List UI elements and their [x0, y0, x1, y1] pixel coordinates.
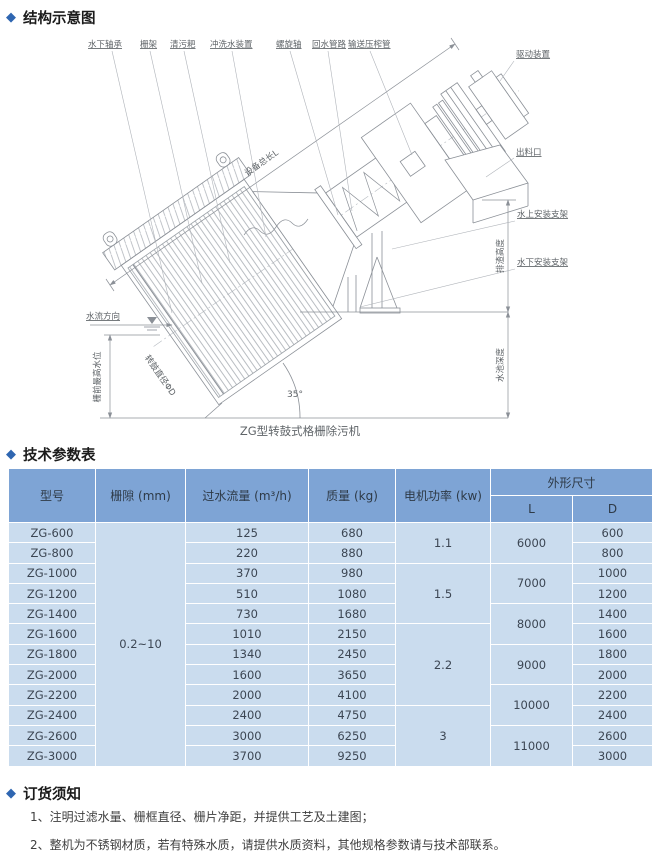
cell-diameter: 1800 — [573, 644, 653, 664]
cell-power: 1.1 — [396, 523, 491, 564]
table-row: ZG-600 0.2~10 125 680 1.1 6000 600 — [9, 523, 653, 543]
cell-mass: 680 — [309, 523, 396, 543]
section-specs-heading: ◆ 技术参数表 — [6, 444, 96, 465]
order-note: 2、整机为不锈钢材质，若有特殊水质，请提供水质资料，其他规格参数请与技术部联系。 — [30, 836, 506, 853]
cell-flow: 1010 — [186, 624, 309, 644]
label-pool-depth: 水池深度 — [495, 348, 506, 383]
cell-mass: 6250 — [309, 725, 396, 745]
cell-model: ZG-3000 — [9, 746, 96, 766]
col-header-L: L — [491, 496, 573, 523]
label-press-pipe: 输送压榨管 — [348, 39, 391, 50]
label-drive: 驱动装置 — [516, 49, 551, 60]
section-title: 技术参数表 — [23, 444, 96, 465]
diagram-caption: ZG型转鼓式格栅除污机 — [240, 424, 361, 438]
cell-model: ZG-2000 — [9, 665, 96, 685]
cell-mass: 3650 — [309, 665, 396, 685]
section-order-heading: ◆ 订货须知 — [6, 783, 81, 804]
cell-model: ZG-1200 — [9, 583, 96, 603]
cell-power: 2.2 — [396, 624, 491, 705]
cell-model: ZG-2200 — [9, 685, 96, 705]
cell-diameter: 3000 — [573, 746, 653, 766]
label-outlet: 出料口 — [516, 147, 542, 158]
catalog-page: ◆ 结构示意图 — [0, 0, 660, 860]
label-angle: 35° — [287, 390, 303, 400]
cell-length: 6000 — [491, 523, 573, 564]
cell-diameter: 1000 — [573, 563, 653, 583]
cell-mass: 4750 — [309, 705, 396, 725]
cell-flow: 2400 — [186, 705, 309, 725]
cell-length: 11000 — [491, 725, 573, 766]
cell-mass: 1680 — [309, 604, 396, 624]
spec-table: 型号 栅隙 (mm) 过水流量 (m³/h) 质量 (kg) 电机功率 (kw)… — [8, 468, 653, 767]
cell-model: ZG-1800 — [9, 644, 96, 664]
cell-mass: 980 — [309, 563, 396, 583]
cell-mass: 2150 — [309, 624, 396, 644]
label-total-length: 设备总长L — [243, 147, 281, 178]
cell-diameter: 2400 — [573, 705, 653, 725]
label-under-water-bracket: 水下安装支架 — [517, 257, 569, 268]
cell-diameter: 800 — [573, 543, 653, 563]
label-return-pipe: 回水管路 — [312, 39, 347, 50]
diamond-icon: ◆ — [6, 787, 16, 800]
cell-flow: 370 — [186, 563, 309, 583]
col-header-gap: 栅隙 (mm) — [96, 469, 186, 523]
section-title: 订货须知 — [23, 783, 81, 804]
label-underwater-bearing: 水下轴承 — [88, 39, 123, 50]
cell-flow: 3700 — [186, 746, 309, 766]
cell-length: 9000 — [491, 644, 573, 685]
cell-diameter: 1400 — [573, 604, 653, 624]
label-front-water-level: 栅前最高水位 — [92, 351, 103, 403]
col-header-mass: 质量 (kg) — [309, 469, 396, 523]
cell-diameter: 2000 — [573, 665, 653, 685]
cell-model: ZG-1600 — [9, 624, 96, 644]
cell-diameter: 1200 — [573, 583, 653, 603]
label-screw-shaft: 螺旋轴 — [276, 39, 302, 50]
cell-diameter: 2200 — [573, 685, 653, 705]
col-header-model: 型号 — [9, 469, 96, 523]
cell-mass: 9250 — [309, 746, 396, 766]
cell-flow: 730 — [186, 604, 309, 624]
cell-diameter: 1600 — [573, 624, 653, 644]
label-grid-frame: 栅架 — [140, 39, 158, 50]
cell-mass: 880 — [309, 543, 396, 563]
label-flush-device: 冲洗水装置 — [210, 39, 253, 50]
label-flow-direction: 水流方向 — [86, 311, 120, 322]
order-note: 1、注明过滤水量、栅框直径、栅片净距，并提供工艺及土建图； — [30, 808, 374, 825]
spec-table-wrap: 型号 栅隙 (mm) 过水流量 (m³/h) 质量 (kg) 电机功率 (kw)… — [8, 468, 652, 767]
cell-flow: 1340 — [186, 644, 309, 664]
cell-diameter: 2600 — [573, 725, 653, 745]
cell-length: 10000 — [491, 685, 573, 726]
cell-model: ZG-600 — [9, 523, 96, 543]
cell-mass: 2450 — [309, 644, 396, 664]
cell-flow: 2000 — [186, 685, 309, 705]
cell-length: 8000 — [491, 604, 573, 645]
cell-power: 1.5 — [396, 563, 491, 624]
diamond-icon: ◆ — [6, 11, 16, 24]
cell-flow: 510 — [186, 583, 309, 603]
label-rake: 清污耙 — [170, 39, 196, 50]
label-drum-diameter: 转鼓直径ΦD — [142, 353, 178, 398]
col-header-D: D — [573, 496, 653, 523]
cell-mass: 1080 — [309, 583, 396, 603]
cell-flow: 1600 — [186, 665, 309, 685]
cell-model: ZG-1400 — [9, 604, 96, 624]
label-discharge-height: 排渣高度 — [495, 239, 506, 274]
cell-model: ZG-800 — [9, 543, 96, 563]
label-above-water-bracket: 水上安装支架 — [517, 209, 569, 220]
col-header-power: 电机功率 (kw) — [396, 469, 491, 523]
cell-model: ZG-1000 — [9, 563, 96, 583]
cell-length: 7000 — [491, 563, 573, 604]
cell-power: 3 — [396, 705, 491, 766]
cell-model: ZG-2600 — [9, 725, 96, 745]
cell-flow: 125 — [186, 523, 309, 543]
cell-diameter: 600 — [573, 523, 653, 543]
cell-flow: 3000 — [186, 725, 309, 745]
cell-gap: 0.2~10 — [96, 523, 186, 767]
structure-diagram: 水下轴承 栅架 清污耙 冲洗水装置 螺旋轴 回水管路 输送压榨管 驱动装置 出料… — [0, 25, 660, 443]
cell-model: ZG-2400 — [9, 705, 96, 725]
col-header-flow: 过水流量 (m³/h) — [186, 469, 309, 523]
cell-mass: 4100 — [309, 685, 396, 705]
cell-flow: 220 — [186, 543, 309, 563]
diamond-icon: ◆ — [6, 448, 16, 461]
col-header-dims: 外形尺寸 — [491, 469, 653, 496]
